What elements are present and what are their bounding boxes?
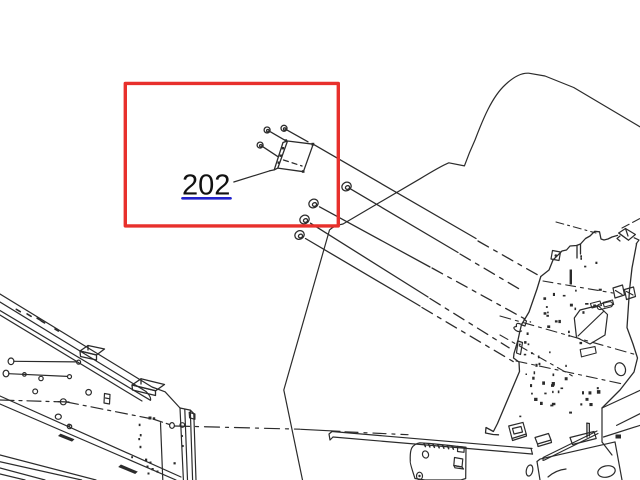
svg-text:202: 202 [182,170,230,202]
